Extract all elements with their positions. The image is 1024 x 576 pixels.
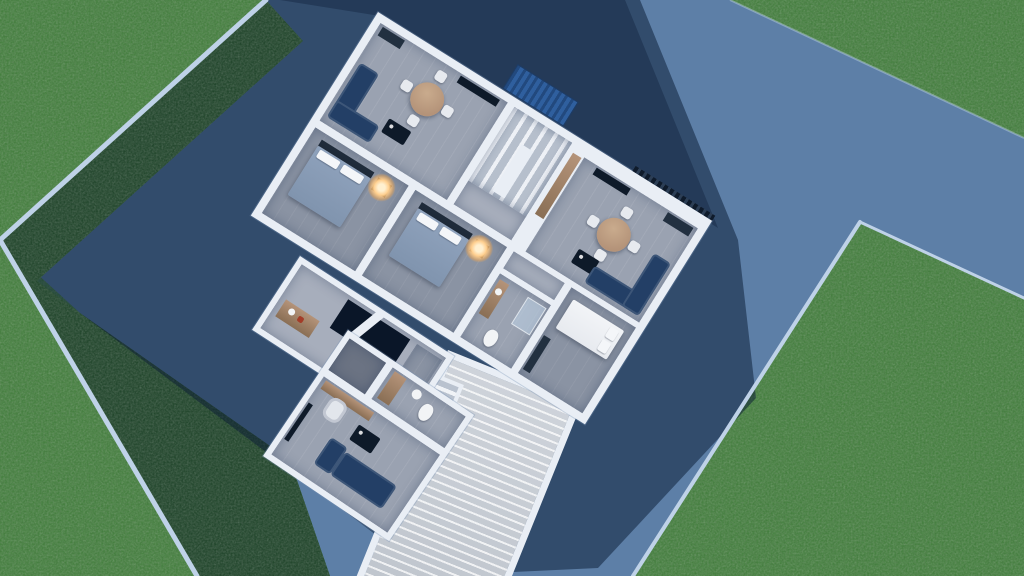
scene-canvas	[0, 0, 1024, 576]
